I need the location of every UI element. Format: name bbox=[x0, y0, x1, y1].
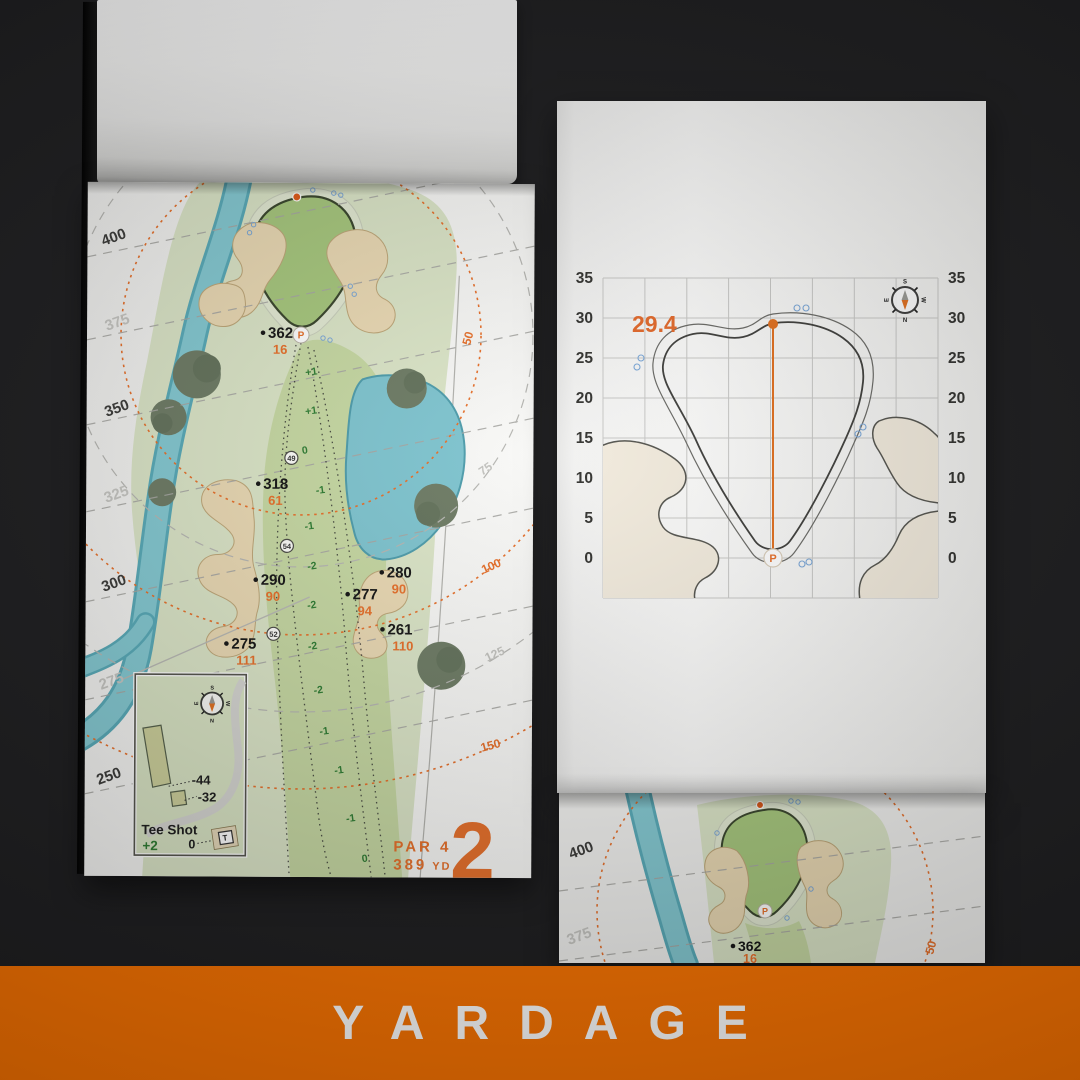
carry-distance: 280 bbox=[387, 564, 412, 581]
pin-label: P bbox=[298, 330, 305, 341]
compass-n: N bbox=[903, 318, 907, 324]
tick-label-right: 20 bbox=[948, 390, 965, 407]
tee-offset-label: -32 bbox=[198, 789, 217, 804]
arc-distance-label: 100 bbox=[479, 555, 503, 576]
carry-distance: 261 bbox=[387, 621, 412, 638]
carry-distance: 318 bbox=[263, 476, 288, 493]
compass-w: W bbox=[920, 297, 926, 303]
compass-e: E bbox=[885, 298, 891, 302]
slope-number: -1 bbox=[334, 764, 345, 777]
tick-label-left: 30 bbox=[576, 310, 593, 327]
tee-shot-inset: -44 -32 Tee Shot +2 0 T S N bbox=[134, 674, 246, 856]
tick-label-right: 0 bbox=[948, 550, 957, 567]
carry-distance: 275 bbox=[231, 636, 256, 653]
flipped-page bbox=[97, 0, 517, 184]
par-label: PAR 4 bbox=[393, 838, 451, 855]
compass-s: S bbox=[903, 280, 907, 286]
yards-value: 389 bbox=[393, 856, 427, 873]
next-map-page: P 400 375 362 16 50 bbox=[559, 793, 985, 963]
slope-number: -2 bbox=[313, 684, 324, 697]
remaining-distance: 111 bbox=[236, 653, 256, 668]
waypoint-number: 54 bbox=[283, 542, 292, 551]
tick-label-right: 30 bbox=[948, 310, 965, 327]
tee-distance-label: 300 bbox=[99, 571, 128, 595]
tee-distance-label: 400 bbox=[99, 225, 128, 249]
compass-w: W bbox=[224, 701, 230, 707]
next-hole-map: P 400 375 362 16 50 bbox=[559, 793, 985, 963]
tee-distance-label: 375 bbox=[103, 310, 132, 334]
depth-dot bbox=[768, 319, 778, 329]
slope-number: -2 bbox=[306, 599, 317, 612]
tick-label-left: 35 bbox=[576, 270, 594, 287]
slope-number: -2 bbox=[307, 640, 318, 653]
hole-number: 2 bbox=[450, 806, 495, 878]
tick-label-right: 15 bbox=[948, 430, 966, 447]
slope-number: +1 bbox=[304, 404, 318, 418]
waypoint-number: 52 bbox=[269, 630, 277, 639]
tick-label-left: 15 bbox=[576, 430, 594, 447]
remaining-distance: 90 bbox=[266, 589, 281, 604]
slope-number: -1 bbox=[319, 725, 330, 738]
remaining-distance: 61 bbox=[268, 493, 283, 508]
remaining-distance: 90 bbox=[392, 581, 407, 596]
pin-label: P bbox=[762, 907, 768, 917]
arc-distance-label: 75 bbox=[476, 459, 495, 478]
arc-distance-label: 50 bbox=[922, 939, 939, 956]
pin-dot bbox=[293, 193, 301, 201]
pin-marker: P bbox=[764, 549, 782, 567]
tee-box bbox=[171, 790, 187, 806]
tick-label-left: 25 bbox=[576, 350, 594, 367]
remaining-distance: 16 bbox=[273, 342, 288, 357]
arc-distance-label: 125 bbox=[483, 643, 507, 664]
remaining-distance: 94 bbox=[358, 603, 373, 618]
slope-number: -1 bbox=[315, 484, 326, 497]
tick-label-left: 10 bbox=[576, 470, 593, 487]
compass-s: S bbox=[210, 685, 214, 691]
tee-distance-label: 250 bbox=[94, 764, 123, 788]
tee-distance-label: 350 bbox=[102, 396, 131, 420]
tick-label-left: 20 bbox=[576, 390, 593, 407]
remaining-distance: 110 bbox=[392, 638, 413, 653]
compass-icon: S N W E bbox=[885, 280, 926, 325]
slope-number: +1 bbox=[305, 365, 319, 379]
pin-marker: P bbox=[758, 904, 772, 918]
green-chart-page: P 29.4 35 30 25 20 15 10 5 0 35 30 25 20… bbox=[557, 101, 986, 793]
carry-distance: 362 bbox=[268, 325, 293, 342]
arc-distance-label: 150 bbox=[479, 736, 502, 755]
remaining-distance: 16 bbox=[743, 952, 757, 963]
hole-map-page: 400 375 350 325 300 275 250 50 75 100 12… bbox=[84, 182, 535, 878]
tee-offset-label: -44 bbox=[192, 772, 212, 787]
yards-unit: YD bbox=[432, 861, 451, 873]
sprinkler-icons bbox=[634, 305, 866, 567]
tee-zero-label: 0 bbox=[188, 837, 195, 851]
yardage-banner: YARDAGE bbox=[0, 966, 1080, 1080]
tick-label-right: 25 bbox=[948, 350, 966, 367]
carry-distance: 277 bbox=[353, 586, 378, 603]
tee-distance-label: 400 bbox=[567, 838, 596, 863]
tick-label-right: 5 bbox=[948, 510, 957, 527]
green-depth-value: 29.4 bbox=[632, 311, 677, 337]
tick-label-right: 35 bbox=[948, 270, 966, 287]
hole-map: 400 375 350 325 300 275 250 50 75 100 12… bbox=[84, 182, 535, 878]
slope-number: -1 bbox=[345, 812, 356, 825]
tick-label-left: 5 bbox=[584, 510, 593, 527]
arc-distance-label: 50 bbox=[459, 330, 476, 347]
green-depth-chart: P 29.4 35 30 25 20 15 10 5 0 35 30 25 20… bbox=[557, 101, 986, 793]
tee-shot-score: +2 bbox=[142, 838, 157, 853]
waypoint-number: 49 bbox=[287, 454, 295, 463]
compass-e: E bbox=[194, 701, 200, 705]
slope-number: -1 bbox=[304, 520, 315, 533]
pin-dot bbox=[757, 802, 764, 809]
yardage-book-scene: 400 375 350 325 300 275 250 50 75 100 12… bbox=[0, 0, 1080, 1080]
compass-n: N bbox=[210, 718, 214, 724]
tee-distance-label: 375 bbox=[565, 924, 594, 949]
carry-distance: 290 bbox=[261, 572, 286, 589]
tick-label-left: 0 bbox=[584, 550, 593, 567]
tee-shot-title: Tee Shot bbox=[141, 822, 198, 837]
tee-distance-label: 325 bbox=[102, 482, 131, 506]
pin-marker: P bbox=[293, 327, 309, 343]
tick-label-right: 10 bbox=[948, 470, 965, 487]
pin-label: P bbox=[769, 553, 776, 565]
banner-title: YARDAGE bbox=[302, 996, 778, 1051]
slope-number: -2 bbox=[307, 560, 318, 573]
